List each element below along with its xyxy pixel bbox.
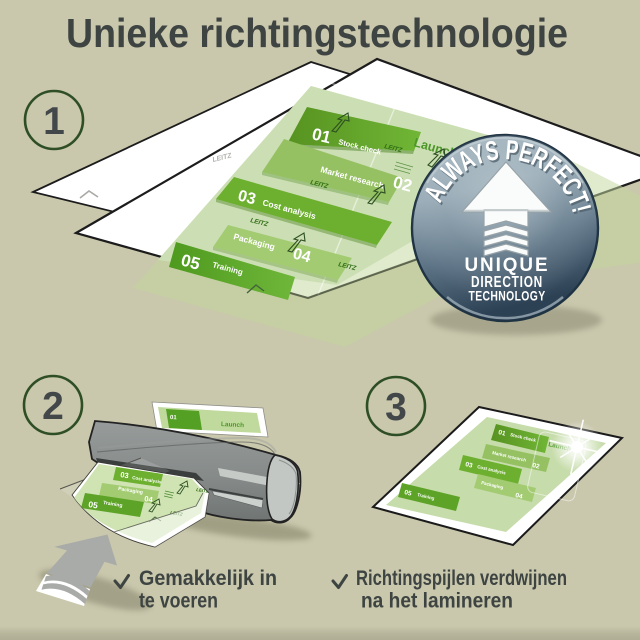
svg-text:01: 01 xyxy=(170,415,178,421)
svg-text:03: 03 xyxy=(120,470,130,480)
svg-text:Richtingspijlen verdwijnen: Richtingspijlen verdwijnen xyxy=(356,567,567,590)
svg-text:Unieke richtingstechnologie: Unieke richtingstechnologie xyxy=(66,10,568,56)
svg-text:05: 05 xyxy=(88,499,99,510)
svg-text:te voeren: te voeren xyxy=(139,590,218,613)
svg-text:3: 3 xyxy=(385,386,407,429)
svg-text:Gemakkelijk in: Gemakkelijk in xyxy=(139,567,277,590)
svg-text:Launch: Launch xyxy=(221,421,244,429)
svg-text:na het lamineren: na het lamineren xyxy=(361,590,513,613)
svg-text:2: 2 xyxy=(42,385,64,428)
svg-text:UNIQUE: UNIQUE xyxy=(465,254,550,276)
svg-text:TECHNOLOGY: TECHNOLOGY xyxy=(469,288,546,304)
svg-text:1: 1 xyxy=(43,100,65,143)
